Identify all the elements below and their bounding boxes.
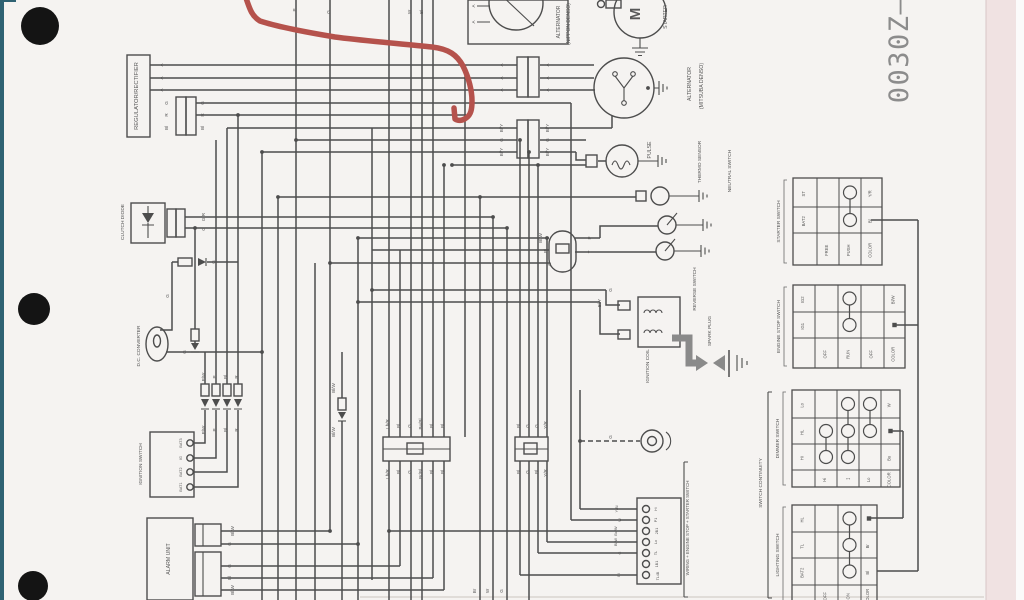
wire-label: Bl bbox=[534, 470, 539, 474]
wire-label: Bl bbox=[223, 375, 228, 379]
contact-circle-icon bbox=[843, 292, 856, 305]
wire-label: G bbox=[608, 288, 613, 292]
wire-label: G bbox=[227, 564, 232, 568]
wire-label: Bl bbox=[440, 470, 445, 474]
wire-tap-dot-icon bbox=[888, 429, 892, 433]
junction-dot-icon bbox=[236, 113, 240, 117]
component-label: THERMO SENSOR bbox=[697, 140, 703, 183]
component-label: (NIPPON DENSO) bbox=[566, 3, 572, 45]
junction-dot-icon bbox=[491, 215, 495, 219]
wire-label: G bbox=[547, 262, 552, 266]
contact-circle-icon bbox=[843, 512, 856, 525]
wire-label: Bl/W bbox=[331, 382, 336, 392]
table-cell-label: BAT2 bbox=[800, 567, 805, 578]
junction-dot-icon bbox=[578, 439, 582, 443]
left-edge-strip bbox=[0, 0, 4, 600]
wire-label: P1 bbox=[654, 518, 658, 522]
table-title: DIMMER SWITCH bbox=[775, 418, 781, 458]
junction-dot-icon bbox=[193, 226, 197, 230]
contact-circle-icon bbox=[843, 565, 856, 578]
wire-label: P bbox=[212, 375, 217, 378]
wire-label: G bbox=[326, 10, 331, 14]
table-cell-label: OFF bbox=[823, 350, 828, 359]
junction-dot-icon bbox=[536, 163, 540, 167]
junction-dot-icon bbox=[370, 288, 374, 292]
wire-label: G bbox=[525, 470, 530, 474]
wire-label: P bbox=[292, 8, 297, 11]
table-cell-label: Bl/W bbox=[891, 295, 896, 304]
wiring-diagram: AAAGRBlGRBlPGWBlAAAAAAAABl/YGBl/YBl/YGBl… bbox=[0, 0, 1024, 600]
wire-label: TL4B bbox=[656, 571, 660, 580]
wire-label: G bbox=[182, 350, 187, 354]
punch-hole-top bbox=[21, 7, 59, 45]
component-label: NEUTRAL SWITCH bbox=[727, 149, 733, 192]
table-cell-label: W bbox=[887, 403, 892, 407]
junction-dot-icon bbox=[505, 226, 509, 230]
wire-label: G bbox=[499, 589, 504, 593]
wire-label: G bbox=[534, 424, 539, 428]
wire-label: Bl bbox=[617, 573, 621, 577]
contact-circle-icon bbox=[864, 398, 877, 411]
scanned-wiring-diagram-page: AAAGRBlGRBlPGWBlAAAAAAAABl/YGBl/YBl/YGBl… bbox=[0, 0, 1024, 600]
wire-label: Bl/W bbox=[538, 232, 543, 242]
contact-circle-icon bbox=[820, 425, 833, 438]
wire-tap-dot-icon bbox=[867, 516, 871, 520]
wire-label: Bl bbox=[543, 249, 548, 253]
wire-label: W bbox=[618, 518, 622, 522]
wire-label: G/R bbox=[201, 212, 206, 221]
table-cell-label: HL bbox=[800, 429, 805, 435]
wire-label: Lb/R bbox=[385, 468, 390, 478]
wire-label: Bu/Bl bbox=[418, 419, 423, 430]
wire-label: G bbox=[618, 551, 622, 554]
junction-dot-icon bbox=[356, 542, 360, 546]
table-cell-label: ↔ bbox=[845, 475, 852, 482]
wire-label: Y/Bl bbox=[615, 505, 619, 512]
wire-label: Bl bbox=[223, 428, 228, 432]
wire-label: Y bbox=[587, 250, 592, 253]
wire-label: Bl bbox=[516, 424, 521, 428]
component-label: ALTERNATOR bbox=[556, 5, 562, 38]
wire-label: G bbox=[608, 435, 613, 439]
junction-dot-icon bbox=[450, 163, 454, 167]
junction-dot-icon bbox=[442, 163, 446, 167]
table-cell-label: IG2 bbox=[800, 296, 805, 303]
junction-dot-icon bbox=[527, 150, 531, 154]
wire-label: Bl bbox=[516, 470, 521, 474]
table-title: LIGHTING SWITCH bbox=[775, 533, 781, 576]
contact-circle-icon bbox=[820, 451, 833, 464]
table-cell-label: COLOR bbox=[887, 472, 892, 487]
wire-label: Bl/W bbox=[230, 584, 235, 594]
wire-label: Bl bbox=[440, 424, 445, 428]
table-cell-label: ON bbox=[846, 593, 851, 599]
wire-label: Bl bbox=[419, 10, 424, 14]
contact-circle-icon bbox=[844, 214, 857, 227]
wire-label: BAT3 bbox=[179, 438, 183, 447]
wire-label: Bl/Y bbox=[499, 124, 504, 132]
component-label: D.C. CONVERTER bbox=[136, 325, 142, 366]
wire-label: BAT2 bbox=[179, 467, 183, 476]
table-cell-label: TL bbox=[800, 543, 805, 549]
wire-label: G bbox=[200, 101, 205, 105]
wire-label: Bl bbox=[164, 126, 169, 130]
table-cell-label: Y/R bbox=[868, 190, 873, 197]
punch-hole-bottom bbox=[18, 571, 48, 600]
wire-label: IG bbox=[179, 456, 183, 460]
table-title: STARTER SWITCH bbox=[776, 200, 782, 243]
junction-dot-icon bbox=[328, 261, 332, 265]
table-cell-label: Lo bbox=[800, 402, 805, 407]
top-edge-strip bbox=[0, 0, 16, 2]
drawing-number: 0030Z— bbox=[884, 0, 915, 103]
contact-circle-icon bbox=[864, 425, 877, 438]
component-label: M bbox=[627, 8, 644, 21]
wire-label: Bl/W bbox=[331, 426, 336, 436]
wire-label: G bbox=[545, 138, 550, 142]
wire-label: Bl/Y bbox=[499, 148, 504, 156]
wire-label: Bl/W bbox=[614, 538, 618, 546]
component-label: IGNITION COIL bbox=[645, 349, 651, 383]
wire-label: G bbox=[499, 138, 504, 142]
contact-circle-icon bbox=[844, 186, 857, 199]
table-cell-label: COLOR bbox=[865, 589, 870, 600]
component-label: IGNITION SWITCH bbox=[138, 443, 144, 485]
wire-label: Bl/W bbox=[230, 525, 235, 535]
wire-label: Y/R bbox=[543, 468, 548, 476]
wire-label: Bu/W bbox=[614, 526, 618, 536]
wire-label: G bbox=[407, 470, 412, 474]
wire-label: P/W bbox=[201, 425, 206, 434]
wire-label: P bbox=[212, 428, 217, 431]
wire-label: W bbox=[485, 588, 490, 593]
contact-circle-icon bbox=[843, 319, 856, 332]
wire-label: Y/R bbox=[543, 420, 548, 428]
wire-label: G bbox=[211, 260, 216, 264]
wire-label: G bbox=[165, 294, 170, 298]
table-cell-label: Bl bbox=[865, 571, 870, 575]
component-label: STARTER bbox=[663, 5, 669, 29]
wire-label: G bbox=[525, 424, 530, 428]
table-title: ENGINE STOP SWITCH bbox=[776, 300, 782, 353]
table-cell-label: Lo bbox=[866, 477, 871, 482]
junction-dot-icon bbox=[356, 236, 360, 240]
wire-label: Br/Bl bbox=[418, 469, 423, 479]
contact-circle-icon bbox=[842, 451, 855, 464]
wire-label: G bbox=[407, 424, 412, 428]
punch-hole-middle bbox=[18, 293, 50, 325]
wire-label: BAT1 bbox=[179, 482, 183, 491]
table-cell-label: RUN bbox=[846, 350, 851, 359]
component-label: SWITCH CONTINUITY bbox=[758, 457, 764, 507]
wire-label: TL bbox=[654, 551, 658, 555]
table-cell-label: FREE bbox=[824, 245, 829, 256]
table-cell-label: Bl bbox=[868, 219, 873, 223]
table-cell-label: OFF bbox=[823, 592, 828, 600]
wire-label: W bbox=[407, 9, 412, 14]
wire-tap-dot-icon bbox=[892, 323, 896, 327]
junction-dot-icon bbox=[478, 195, 482, 199]
wire-label: G bbox=[164, 101, 169, 105]
wire-label: Bl/Y bbox=[597, 299, 602, 307]
contact-circle-icon bbox=[843, 539, 856, 552]
component-label: REGULATOR/RECTIFIER bbox=[134, 62, 140, 130]
table-cell-label: IG1 bbox=[800, 322, 805, 329]
wire-label: Bl bbox=[396, 424, 401, 428]
table-cell-label: Hi bbox=[800, 456, 805, 460]
table-cell-label: Br bbox=[865, 544, 870, 549]
component-label: ALTERNATOR bbox=[687, 67, 693, 101]
junction-dot-icon bbox=[328, 529, 332, 533]
wire-label: G bbox=[227, 542, 232, 546]
table-cell-label: OFF bbox=[869, 350, 874, 359]
table-cell-label: PUSH bbox=[846, 244, 851, 256]
table-cell-label: COLOR bbox=[868, 243, 873, 258]
wire-label: Lo bbox=[654, 540, 658, 544]
wire-label: Bl bbox=[429, 470, 434, 474]
wire-label: Bl bbox=[227, 576, 232, 580]
component-label: PULSE bbox=[647, 141, 653, 159]
wire-label: 2B1 bbox=[655, 528, 659, 534]
component-label: SPARK PLUG bbox=[707, 316, 713, 347]
wire-label: Bl bbox=[396, 470, 401, 474]
table-cell-label: ST bbox=[801, 191, 806, 197]
table-cell-label: Bu bbox=[887, 455, 892, 461]
component-label: (MITSUBA DENSO) bbox=[699, 63, 705, 109]
wire-label: Bl bbox=[429, 424, 434, 428]
junction-dot-icon bbox=[356, 300, 360, 304]
junction-dot-icon bbox=[276, 195, 280, 199]
junction-dot-icon bbox=[387, 529, 391, 533]
table-cell-label: BAT2 bbox=[801, 216, 806, 227]
wire-label: Lb/R bbox=[385, 418, 390, 428]
junction-dot-icon bbox=[518, 138, 522, 142]
wire-label: Hi bbox=[654, 507, 658, 511]
wire-label: Bl/Y bbox=[545, 124, 550, 132]
wire-label: 1B1 bbox=[655, 561, 659, 567]
contact-circle-icon bbox=[842, 398, 855, 411]
table-cell-label: HL bbox=[800, 516, 805, 522]
component-label: WIRING + ENGINE STOP + STARTER SWITCH bbox=[685, 481, 690, 576]
table-cell-label: COLOR bbox=[891, 347, 896, 362]
wire-label: P/W bbox=[201, 372, 206, 381]
wire-label: Bl bbox=[200, 126, 205, 130]
junction-dot-icon bbox=[294, 138, 298, 142]
contact-circle-icon bbox=[842, 425, 855, 438]
component-label: CLUTCH DIODE bbox=[120, 204, 126, 240]
table-cell-label: Hi bbox=[822, 478, 827, 482]
component-label: ALARM UNIT bbox=[166, 542, 172, 574]
right-white-edge bbox=[1016, 0, 1024, 600]
wire-label: G bbox=[201, 227, 206, 231]
junction-dot-icon bbox=[545, 236, 549, 240]
component-label: REVERSE SWITCH bbox=[692, 267, 698, 311]
wire-label: Br bbox=[472, 588, 477, 593]
wire-label: P bbox=[587, 236, 592, 239]
junction-dot-icon bbox=[260, 350, 264, 354]
wire-label: Bl/Y bbox=[545, 148, 550, 156]
junction-dot-icon bbox=[646, 86, 650, 90]
junction-dot-icon bbox=[260, 150, 264, 154]
